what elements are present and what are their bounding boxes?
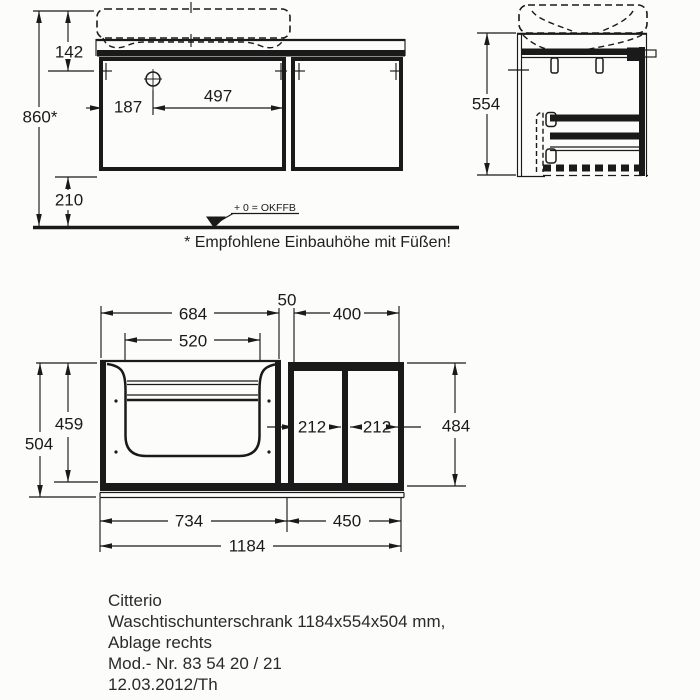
hanger-tab (596, 58, 603, 73)
dim-plan-right-bottom: 450 (333, 512, 361, 531)
plan-front-wall (100, 483, 404, 491)
dim-plan-left-section: 684 (179, 305, 207, 324)
technical-drawing-page: 142 860* 210 187 497 + 0 = OKFFB (0, 0, 700, 700)
dim-front-tap-to-divider: 497 (204, 87, 232, 106)
washbasin-bowl-slant (532, 11, 572, 31)
title-description: Waschtischunterschrank 1184x554x504 mm, (108, 611, 445, 632)
dim-front-top-offset: 142 (55, 43, 83, 62)
interior-drawer (517, 113, 648, 177)
plan-left-wall (100, 361, 106, 489)
side-back-panel (639, 47, 645, 176)
title-brand: Citterio (108, 590, 445, 611)
washbasin-side-outline (519, 5, 647, 33)
dim-plan-right-section: 400 (333, 305, 361, 324)
floor-datum: + 0 = OKFFB (33, 202, 459, 228)
countertop-band (97, 50, 405, 57)
front-right-panel (293, 59, 401, 169)
dim-plan-compartment-left: 212 (298, 418, 326, 437)
shelf-right-wall (398, 362, 404, 484)
dim-plan-compartment-right: 212 (363, 418, 391, 437)
side-countertop-band (521, 49, 639, 56)
plan-front-strip (100, 493, 404, 498)
plan-view: 684 50 400 520 459 504 212 212 484 734 4… (25, 291, 470, 556)
dim-plan-cutout: 520 (179, 332, 207, 351)
hanger-tab (551, 58, 558, 73)
front-view: 142 860* 210 187 497 (23, 2, 405, 226)
side-view: 554 (472, 5, 656, 177)
dim-plan-shelf-depth: 484 (442, 417, 470, 436)
plan-divider-wall-left (275, 361, 281, 483)
shelf-back-wall (288, 362, 404, 371)
datum-label: + 0 = OKFFB (234, 202, 296, 214)
basin-cutout (107, 364, 278, 456)
title-variant: Ablage rechts (108, 632, 445, 653)
washbasin-front-outline (97, 9, 290, 38)
dim-front-tap-from-left: 187 (114, 98, 142, 117)
dim-front-install-height: 860* (23, 108, 58, 127)
dim-plan-gap: 50 (278, 291, 297, 310)
title-block: Citterio Waschtischunterschrank 1184x554… (108, 590, 445, 695)
wall-bracket (627, 48, 640, 62)
installation-footnote: * Empfohlene Einbauhöhe mit Füßen! (170, 234, 465, 252)
dim-plan-inner-depth: 459 (55, 415, 83, 434)
shelf-left-wall (288, 362, 294, 484)
washbasin-bowl-slant (602, 11, 633, 31)
dim-plan-total-width: 1184 (229, 537, 266, 556)
dim-front-floor-clearance: 210 (55, 191, 83, 210)
shelf-center-divider (342, 371, 348, 483)
drill-marks (114, 399, 270, 453)
basin-ledge-lines (127, 381, 258, 400)
dim-plan-total-depth: 504 (25, 435, 53, 454)
wall-bracket-arm (644, 50, 656, 57)
title-date: 12.03.2012/Th (108, 674, 445, 695)
title-model-number: Mod.- Nr. 83 54 20 / 21 (108, 653, 445, 674)
dim-plan-left-bottom: 734 (175, 512, 203, 531)
dim-side-height: 554 (472, 95, 500, 114)
